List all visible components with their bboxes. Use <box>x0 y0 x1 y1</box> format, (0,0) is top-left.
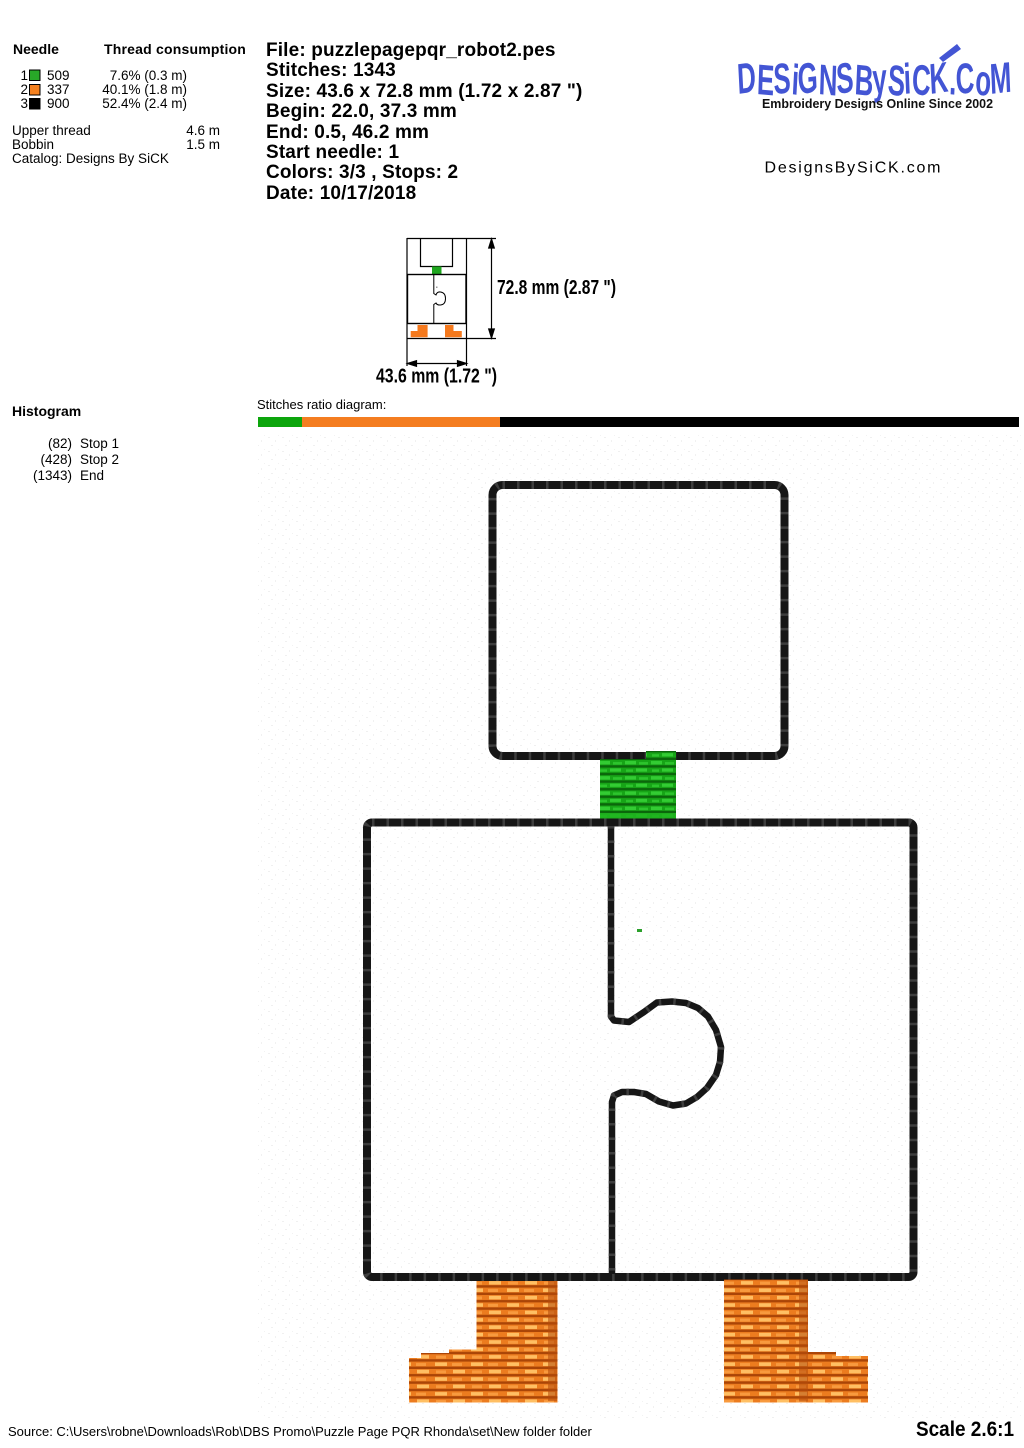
svg-text:Embroidery Designs Online Sinc: Embroidery Designs Online Since 2002 <box>762 96 993 111</box>
svg-text:43.6 mm (1.72 "): 43.6 mm (1.72 ") <box>376 366 497 388</box>
svg-text:Scale 2.6:1: Scale 2.6:1 <box>916 1417 1014 1441</box>
svg-text:DesignsBySiCK.com: DesignsBySiCK.com <box>765 160 941 177</box>
svg-text:72.8 mm (2.87 "): 72.8 mm (2.87 ") <box>497 277 616 299</box>
